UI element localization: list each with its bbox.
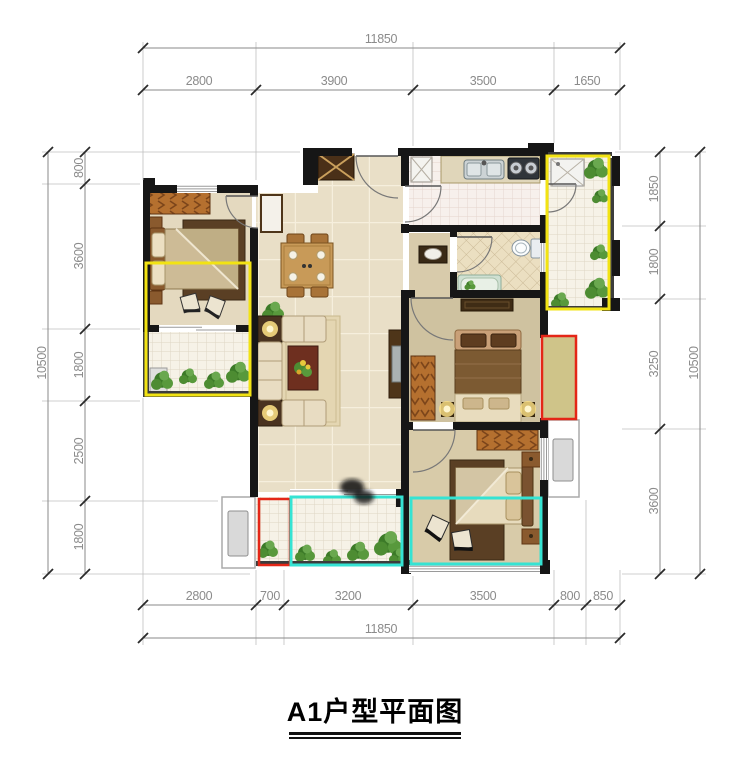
ac-bay-right [548, 420, 579, 497]
kitchen-sink-icon [464, 160, 504, 179]
dimensions-left: 10500 800 3600 1800 2500 1800 [35, 147, 90, 579]
nightstand-icon [148, 291, 162, 304]
floor-plan-canvas: 11850 2800 3900 3500 1650 2800 700 3200 … [0, 0, 750, 775]
dim-label: 850 [593, 589, 613, 603]
window-icon [540, 438, 548, 480]
dim-label: 11850 [365, 622, 398, 636]
window-icon [177, 185, 217, 193]
hallway-furniture [419, 246, 447, 263]
dim-label: 3900 [321, 74, 348, 88]
dining-chair-icon [311, 287, 328, 297]
ac-bay-left [222, 497, 255, 568]
washbasin-icon [425, 249, 442, 260]
dim-label: 10500 [687, 346, 701, 380]
ac-outdoor-unit-icon [228, 511, 248, 556]
dim-label: 3200 [335, 589, 362, 603]
dining-chair-icon [287, 287, 304, 297]
fridge-icon [411, 157, 432, 182]
equipment-platform-fill [542, 336, 576, 419]
title-underline [289, 732, 461, 736]
dim-label: 3500 [470, 589, 497, 603]
double-bed-icon [150, 228, 238, 290]
hallway-floor [409, 233, 450, 298]
ac-outdoor-unit-icon [553, 439, 573, 481]
dim-label: 1800 [647, 248, 661, 275]
dim-label: 10500 [35, 346, 49, 380]
wardrobe-icon [477, 430, 538, 450]
floor-plan-page: 11850 2800 3900 3500 1650 2800 700 3200 … [0, 0, 750, 775]
dim-label: 800 [560, 589, 580, 603]
dimensions-top: 11850 2800 3900 3500 1650 [138, 32, 625, 95]
dim-label: 700 [260, 589, 280, 603]
chair-icon [452, 530, 473, 553]
dresser-icon [461, 299, 513, 311]
dim-label: 3500 [470, 74, 497, 88]
dim-label: 2800 [186, 589, 213, 603]
dim-label: 1800 [72, 351, 86, 378]
dim-label: 800 [72, 158, 86, 178]
title-block: A1户型平面图 [0, 698, 750, 739]
dim-label: 3600 [72, 242, 86, 269]
entry-console-icon [261, 195, 282, 232]
dim-label: 2500 [72, 437, 86, 464]
dim-label: 1850 [647, 175, 661, 202]
dining-table-icon [281, 243, 333, 288]
tv-icon [392, 346, 401, 382]
dimensions-right: 1850 1800 3250 3600 10500 [647, 147, 705, 579]
wardrobe-icon [411, 356, 435, 420]
dim-label: 3600 [647, 487, 661, 514]
dim-label: 2800 [186, 74, 213, 88]
title-underline-thin [289, 737, 461, 739]
dim-label: 11850 [365, 32, 398, 46]
dim-label: 3250 [647, 350, 661, 377]
stove-icon [508, 158, 539, 179]
double-bed-icon [456, 466, 533, 526]
wardrobe-icon [148, 191, 210, 214]
plan-title: A1户型平面图 [0, 698, 750, 728]
dim-label: 1650 [574, 74, 601, 88]
washing-machine-icon [551, 159, 584, 186]
dim-label: 1800 [72, 523, 86, 550]
double-bed-icon [455, 330, 521, 422]
sliding-door-icon [159, 325, 236, 332]
bay-window-icon [409, 565, 540, 573]
kitchen-furniture [411, 156, 540, 183]
dimensions-bottom: 2800 700 3200 3500 800 850 11850 [138, 589, 625, 643]
